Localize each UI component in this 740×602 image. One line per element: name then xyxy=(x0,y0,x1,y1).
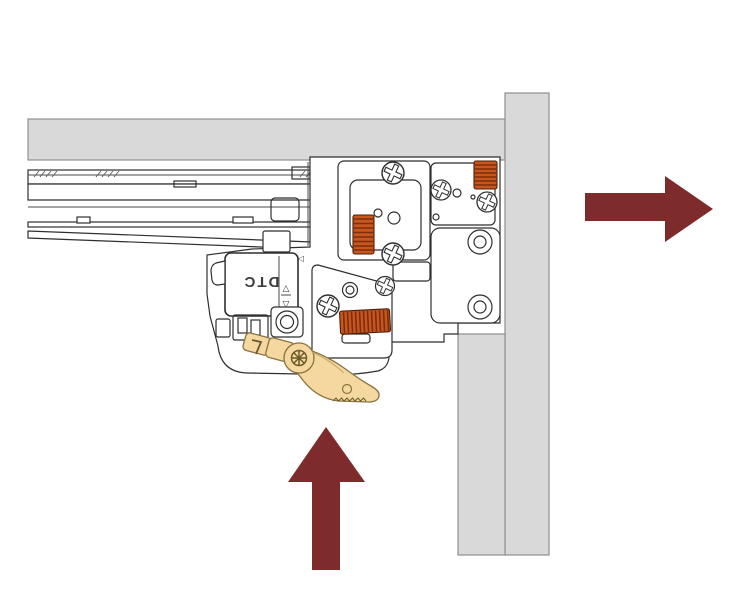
side-adjust-gear xyxy=(474,161,497,189)
mount-hole xyxy=(453,189,461,197)
side-panel-face xyxy=(505,93,549,555)
left-adjust-triangle-icon: ◁ xyxy=(297,254,304,263)
phillips-screw-icon xyxy=(375,276,395,296)
lever-hole xyxy=(343,385,352,394)
bracket-screw-hole xyxy=(468,295,492,319)
side-panel-edge xyxy=(458,334,505,555)
top-panel-board xyxy=(28,119,505,160)
installation-diagram: DTC △ ▽ ◁ xyxy=(0,0,740,602)
direction-arrow-up xyxy=(288,427,365,570)
rail-tab xyxy=(77,217,90,223)
small-block xyxy=(263,231,290,252)
rail-detail xyxy=(271,198,299,221)
arrow-right-icon xyxy=(585,176,713,242)
phillips-screw-icon xyxy=(316,294,339,317)
pozidriv-screw-icon xyxy=(292,351,307,366)
rail-tab xyxy=(233,217,253,223)
arrow-up-icon xyxy=(288,427,365,570)
cartridge-clip xyxy=(211,261,225,285)
rail-lower-member xyxy=(28,222,332,227)
phillips-screw-icon xyxy=(381,242,404,265)
bracket-screw-hole xyxy=(468,230,492,254)
mount-hole xyxy=(433,214,439,220)
pivot-boss xyxy=(271,307,303,337)
mount-hole xyxy=(374,209,382,217)
small-block xyxy=(393,262,430,281)
mount-hole xyxy=(388,212,400,224)
phillips-screw-icon xyxy=(476,191,497,212)
phillips-screw-icon xyxy=(430,179,451,200)
height-adjust-gear xyxy=(353,215,374,254)
ring-hole xyxy=(343,283,358,298)
phillips-screw-icon xyxy=(381,161,404,184)
up-adjust-triangle-icon: △ xyxy=(283,284,290,294)
brand-logo-text: DTC xyxy=(243,273,280,290)
cabinet-top-panel xyxy=(28,119,505,160)
diagram-canvas: DTC △ ▽ ◁ xyxy=(0,0,740,602)
direction-arrow-right xyxy=(585,176,713,242)
tilt-adjust-gear xyxy=(339,309,390,335)
